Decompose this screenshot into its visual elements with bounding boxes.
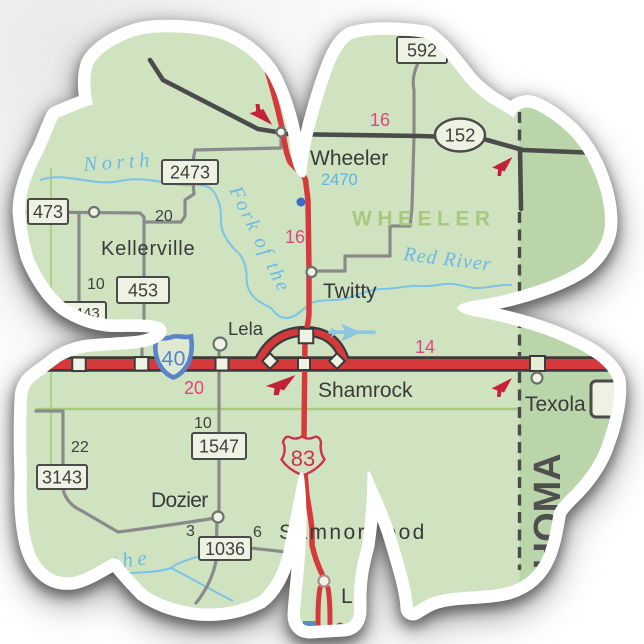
svg-text:10: 10 xyxy=(87,276,105,293)
svg-text:14: 14 xyxy=(415,337,435,357)
svg-text:22: 22 xyxy=(71,439,89,456)
svg-text:152: 152 xyxy=(445,125,476,146)
svg-text:40: 40 xyxy=(162,347,186,371)
svg-text:83: 83 xyxy=(291,446,315,471)
svg-text:Twitty: Twitty xyxy=(323,280,377,303)
svg-text:L: L xyxy=(341,585,353,608)
svg-text:Wheeler: Wheeler xyxy=(310,147,388,170)
svg-text:3: 3 xyxy=(186,523,195,540)
svg-text:Texola: Texola xyxy=(525,393,586,416)
svg-text:2473: 2473 xyxy=(170,162,210,182)
svg-text:3143: 3143 xyxy=(42,467,82,487)
svg-text:Lela: Lela xyxy=(228,318,264,339)
svg-text:6: 6 xyxy=(253,524,262,541)
svg-text:10: 10 xyxy=(194,415,212,432)
svg-text:2470: 2470 xyxy=(321,171,358,189)
svg-text:1547: 1547 xyxy=(199,436,239,456)
svg-text:1036: 1036 xyxy=(205,539,245,559)
svg-text:453: 453 xyxy=(128,280,158,300)
svg-text:20: 20 xyxy=(155,208,173,225)
svg-text:473: 473 xyxy=(33,202,63,222)
svg-text:WHEELER: WHEELER xyxy=(352,208,496,231)
svg-text:Dozier: Dozier xyxy=(151,489,208,512)
svg-text:Kellerville: Kellerville xyxy=(101,238,195,260)
svg-text:16: 16 xyxy=(285,227,305,247)
svg-text:16: 16 xyxy=(370,110,390,130)
svg-text:20: 20 xyxy=(184,378,204,398)
svg-text:Shamrock: Shamrock xyxy=(318,379,413,402)
